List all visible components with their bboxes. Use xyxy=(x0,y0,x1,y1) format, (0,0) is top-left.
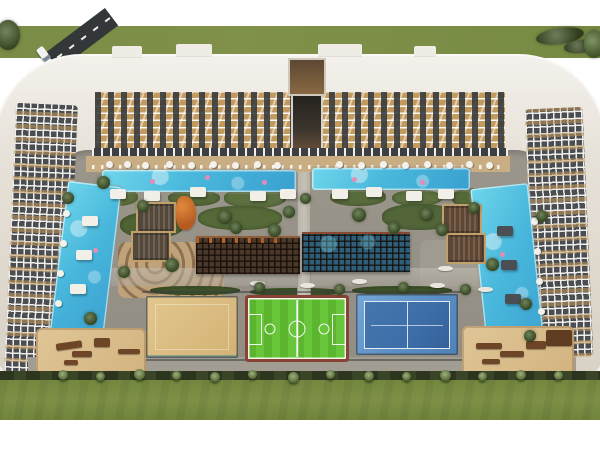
pitch-arc-right xyxy=(319,323,330,334)
sand-playground xyxy=(36,328,146,376)
pitch-arc-left xyxy=(264,323,275,334)
water-slide xyxy=(176,196,196,230)
left-pool-top xyxy=(102,170,296,192)
aerial-render-scene xyxy=(0,0,600,450)
sand-court-markings xyxy=(155,304,229,350)
lattice-canopy-pool xyxy=(302,232,410,272)
court-fence-south xyxy=(142,359,462,361)
sand-court xyxy=(146,296,238,358)
pitch-center-circle xyxy=(289,320,306,337)
bottom-lawn xyxy=(0,380,600,420)
canopy-accent xyxy=(196,238,286,243)
tennis-service-line xyxy=(371,325,443,326)
tennis-court xyxy=(356,294,458,355)
right-pool-top xyxy=(312,168,470,190)
lattice-canopy-west xyxy=(196,236,300,274)
rooftop-structure xyxy=(288,58,326,96)
tennis-court-inner xyxy=(364,301,450,349)
central-atrium xyxy=(291,92,323,152)
canopy-pool-glint xyxy=(302,234,390,254)
penalty-box-left xyxy=(248,314,262,345)
football-pitch xyxy=(248,298,346,359)
court-fence-north xyxy=(142,291,462,293)
penalty-box-right xyxy=(332,314,346,345)
